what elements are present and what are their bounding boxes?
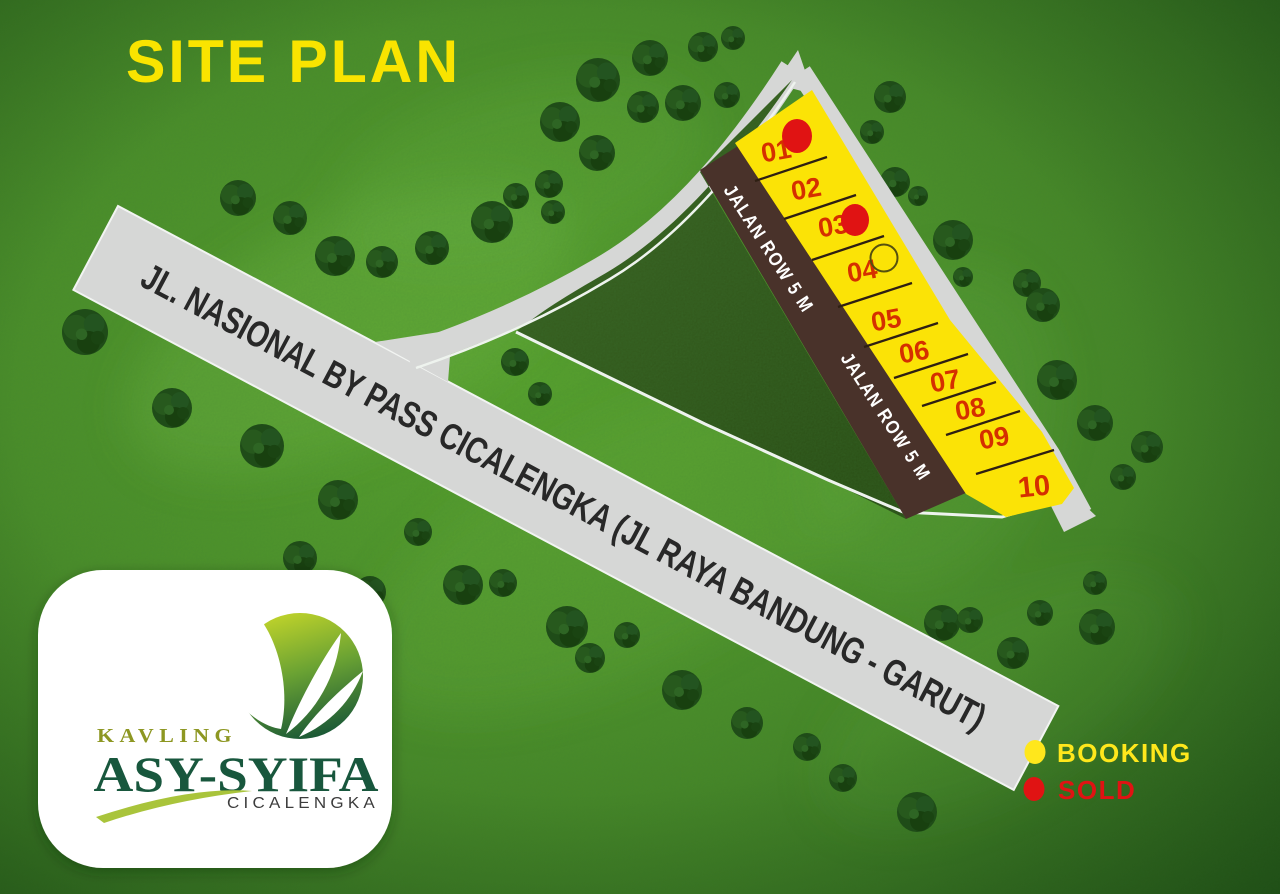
plot-number-07: 07 xyxy=(928,364,963,399)
tree-icon xyxy=(62,309,108,355)
tree-icon xyxy=(576,58,620,102)
tree-icon xyxy=(908,186,928,206)
tree-icon xyxy=(874,81,906,113)
tree-icon xyxy=(540,102,580,142)
tree-icon xyxy=(240,424,284,468)
logo-card: KAVLING ASY-SYIFA CICALENGKA xyxy=(38,570,392,868)
tree-icon xyxy=(1110,464,1136,490)
logo-kavling: KAVLING xyxy=(97,725,237,747)
tree-icon xyxy=(575,643,605,673)
sold-marker-plot-03 xyxy=(841,204,869,236)
tree-icon xyxy=(546,606,588,648)
sold-marker-plot-01 xyxy=(782,119,812,153)
tree-icon xyxy=(541,200,565,224)
tree-icon xyxy=(665,85,701,121)
tree-icon xyxy=(714,82,740,108)
tree-icon xyxy=(318,480,358,520)
tree-icon xyxy=(471,201,513,243)
tree-icon xyxy=(443,565,483,605)
tree-icon xyxy=(1079,609,1115,645)
tree-icon xyxy=(662,670,702,710)
tree-icon xyxy=(1083,571,1107,595)
tree-icon xyxy=(535,170,563,198)
legend-sold-label: SOLD xyxy=(1058,775,1136,805)
plot-number-04: 04 xyxy=(845,254,880,289)
tree-icon xyxy=(860,120,884,144)
tree-icon xyxy=(1026,288,1060,322)
tree-icon xyxy=(315,236,355,276)
plot-number-09: 09 xyxy=(977,421,1012,456)
tree-icon xyxy=(721,26,745,50)
tree-icon xyxy=(489,569,517,597)
tree-icon xyxy=(924,605,960,641)
tree-icon xyxy=(579,135,615,171)
tree-icon xyxy=(829,764,857,792)
tree-icon xyxy=(1037,360,1077,400)
tree-icon xyxy=(627,91,659,123)
tree-icon xyxy=(503,183,529,209)
tree-icon xyxy=(366,246,398,278)
tree-icon xyxy=(731,707,763,739)
tree-icon xyxy=(283,541,317,575)
tree-icon xyxy=(953,267,973,287)
legend-booking-dot xyxy=(1025,740,1046,764)
tree-icon xyxy=(688,32,718,62)
tree-icon xyxy=(1131,431,1163,463)
tree-icon xyxy=(415,231,449,265)
legend-sold-dot xyxy=(1024,777,1045,801)
legend-booking-label: BOOKING xyxy=(1057,738,1192,768)
tree-icon xyxy=(220,180,256,216)
tree-icon xyxy=(273,201,307,235)
plot-number-10: 10 xyxy=(1016,469,1051,504)
tree-icon xyxy=(1027,600,1053,626)
plot-number-06: 06 xyxy=(897,335,932,370)
tree-icon xyxy=(957,607,983,633)
logo-city: CICALENGKA xyxy=(227,795,379,812)
plot-number-02: 02 xyxy=(789,172,824,207)
tree-icon xyxy=(1077,405,1113,441)
tree-icon xyxy=(152,388,192,428)
plot-number-08: 08 xyxy=(953,392,988,427)
logo-name: ASY-SYIFA xyxy=(94,746,379,802)
tree-icon xyxy=(632,40,668,76)
tree-icon xyxy=(793,733,821,761)
tree-icon xyxy=(614,622,640,648)
tree-icon xyxy=(933,220,973,260)
plot-number-05: 05 xyxy=(869,303,904,338)
site-plan-canvas: JL. NASIONAL BY PASS CICALENGKA (JL RAYA… xyxy=(0,0,1280,894)
tree-icon xyxy=(528,382,552,406)
site-plan-page: JL. NASIONAL BY PASS CICALENGKA (JL RAYA… xyxy=(0,0,1280,894)
tree-icon xyxy=(997,637,1029,669)
tree-icon xyxy=(897,792,937,832)
page-title: SITE PLAN xyxy=(126,28,461,95)
tree-icon xyxy=(404,518,432,546)
tree-icon xyxy=(501,348,529,376)
